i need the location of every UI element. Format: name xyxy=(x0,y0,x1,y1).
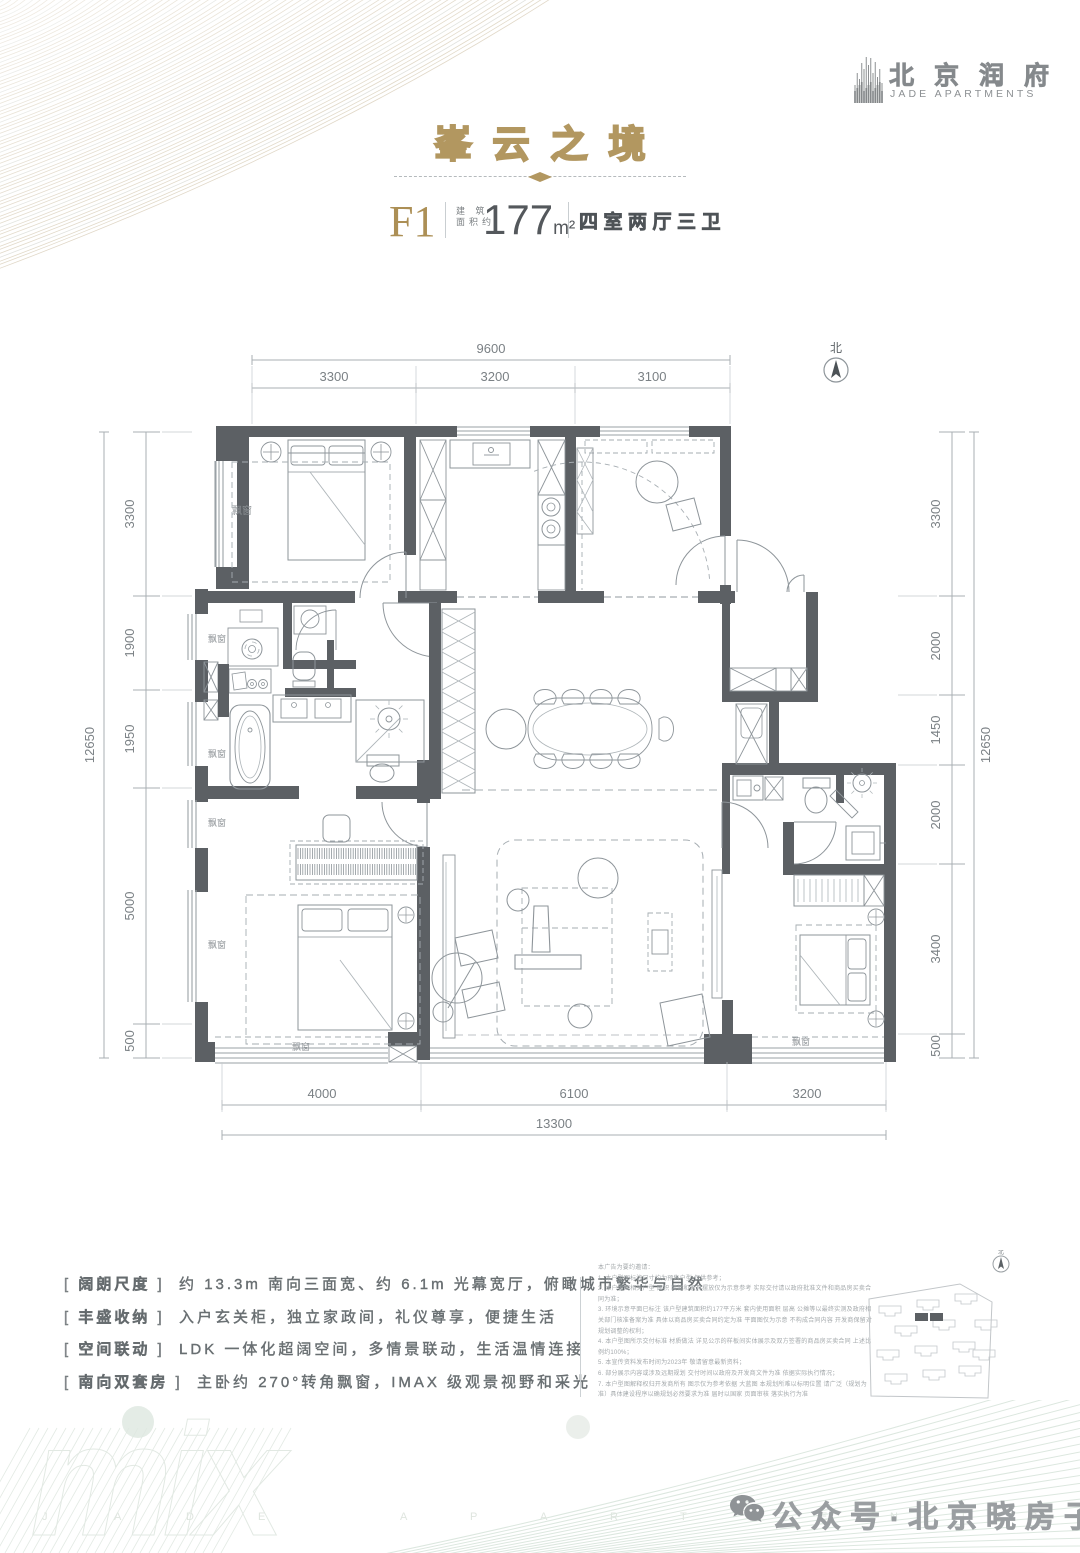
svg-text:1900: 1900 xyxy=(122,629,137,658)
svg-text:12650: 12650 xyxy=(82,727,97,763)
svg-text:A: A xyxy=(114,1511,122,1523)
svg-text:飘窗: 飘窗 xyxy=(208,633,226,644)
svg-text:P: P xyxy=(470,1511,477,1523)
svg-text:6100: 6100 xyxy=(560,1086,589,1101)
svg-text:A: A xyxy=(400,1511,408,1523)
svg-text:3100: 3100 xyxy=(638,369,667,384)
svg-text:1450: 1450 xyxy=(928,716,943,745)
svg-text:12650: 12650 xyxy=(978,727,993,763)
svg-text:飘窗: 飘窗 xyxy=(208,817,226,828)
svg-text:T: T xyxy=(680,1511,687,1523)
svg-text:3300: 3300 xyxy=(122,500,137,529)
svg-text:R: R xyxy=(610,1511,618,1523)
svg-text:9600: 9600 xyxy=(477,341,506,356)
svg-text:飘窗: 飘窗 xyxy=(292,1041,310,1052)
svg-text:500: 500 xyxy=(122,1030,137,1052)
svg-text:2000: 2000 xyxy=(928,632,943,661)
svg-text:5000: 5000 xyxy=(122,892,137,921)
svg-text:飘窗: 飘窗 xyxy=(208,939,226,950)
svg-text:D: D xyxy=(186,1511,194,1523)
svg-text:3300: 3300 xyxy=(928,500,943,529)
svg-text:飘窗: 飘窗 xyxy=(792,1036,810,1047)
svg-text:3200: 3200 xyxy=(793,1086,822,1101)
svg-text:飘窗: 飘窗 xyxy=(208,748,226,759)
svg-text:A: A xyxy=(540,1511,548,1523)
svg-text:3300: 3300 xyxy=(320,369,349,384)
svg-text:3200: 3200 xyxy=(481,369,510,384)
svg-text:北: 北 xyxy=(998,1250,1004,1256)
svg-text:2000: 2000 xyxy=(928,801,943,830)
svg-text:4000: 4000 xyxy=(308,1086,337,1101)
svg-text:500: 500 xyxy=(928,1035,943,1057)
svg-text:mix: mix xyxy=(30,1400,292,1553)
svg-text:E: E xyxy=(258,1511,265,1523)
svg-text:北: 北 xyxy=(830,341,842,355)
svg-text:J: J xyxy=(42,1511,48,1523)
svg-text:飘窗: 飘窗 xyxy=(232,504,252,517)
svg-text:1950: 1950 xyxy=(122,725,137,754)
svg-text:3400: 3400 xyxy=(928,935,943,964)
svg-text:13300: 13300 xyxy=(536,1116,572,1131)
